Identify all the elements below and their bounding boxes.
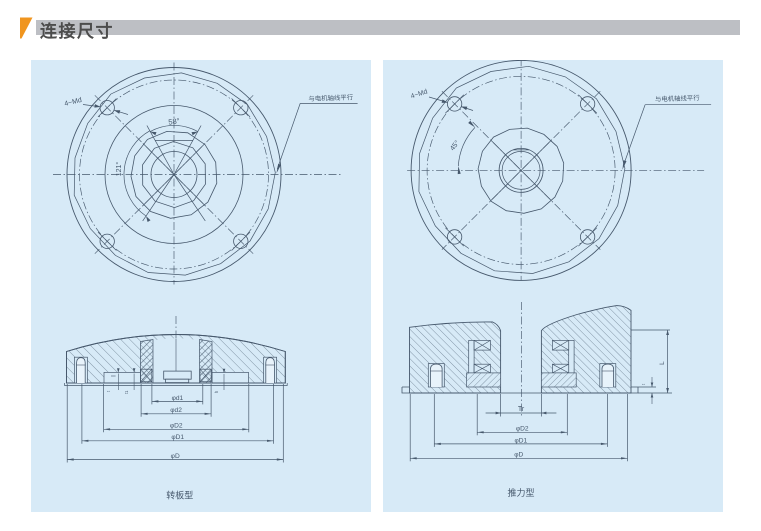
svg-text:φD2: φD2 bbox=[170, 423, 183, 430]
svg-text:φD: φD bbox=[514, 452, 523, 459]
svg-text:Tr: Tr bbox=[518, 406, 525, 413]
svg-text:φd2: φd2 bbox=[170, 407, 182, 414]
svg-text:φD2: φD2 bbox=[516, 426, 529, 433]
svg-text:58°: 58° bbox=[168, 116, 180, 126]
svg-text:φD: φD bbox=[171, 453, 180, 460]
svg-text:φD1: φD1 bbox=[514, 437, 527, 444]
svg-text:121°: 121° bbox=[115, 162, 123, 177]
svg-text:φd1: φd1 bbox=[172, 395, 184, 402]
svg-text:L: L bbox=[659, 361, 666, 365]
svg-text:φD1: φD1 bbox=[171, 434, 184, 441]
svg-text:推力型: 推力型 bbox=[507, 487, 534, 498]
svg-text:转板型: 转板型 bbox=[166, 490, 193, 501]
